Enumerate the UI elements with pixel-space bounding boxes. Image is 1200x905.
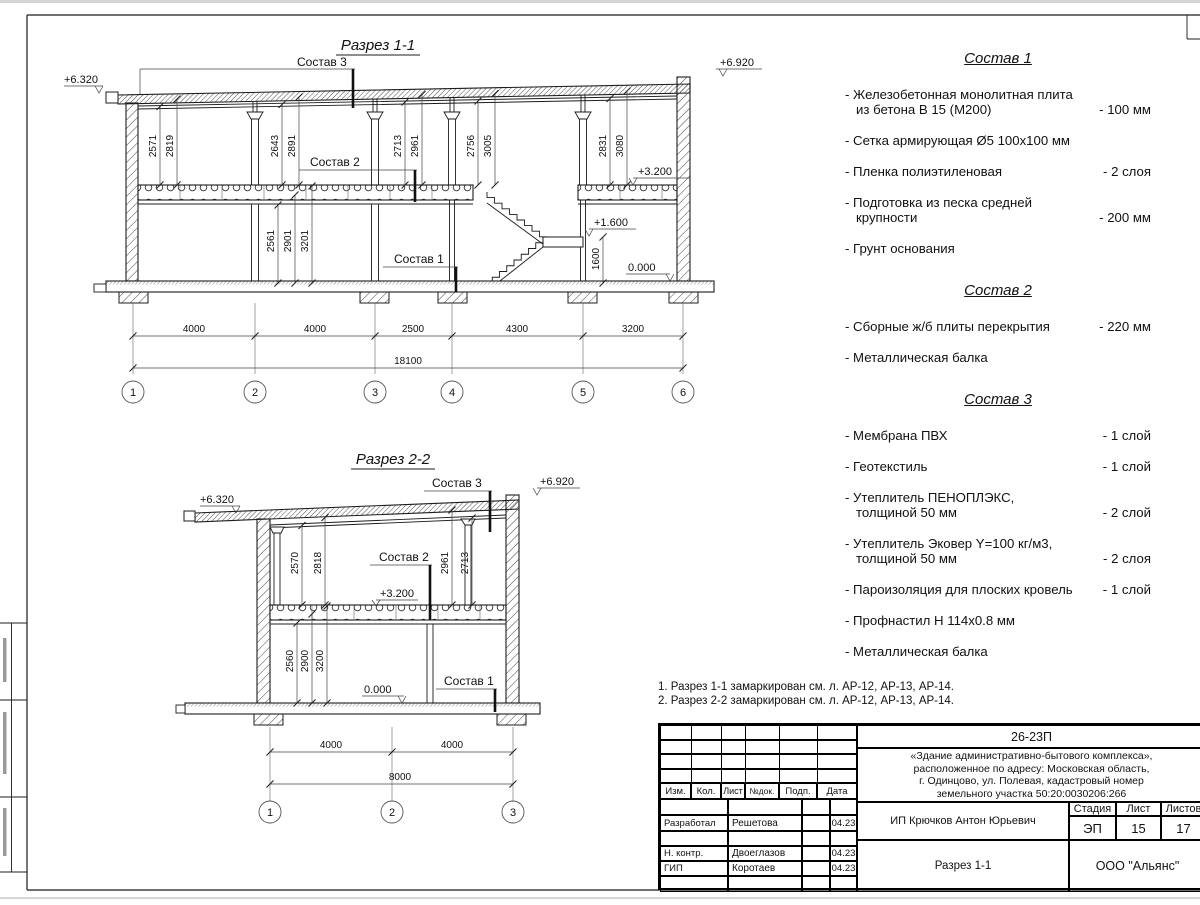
spec-value: - 1 слой: [1097, 459, 1151, 474]
spec-item: - Металлическая балка: [845, 350, 1151, 365]
dim-label: 2901: [283, 229, 294, 252]
sostav3-label: Состав 3: [432, 476, 482, 490]
dim-label: 2713: [393, 134, 404, 157]
dim-label: 3200: [622, 324, 645, 335]
spec-name: - Сборные ж/б плиты перекрытия: [845, 319, 1050, 334]
notes: 1. Разрез 1-1 замаркирован см. л. АР-12,…: [658, 680, 1188, 708]
axis-number: 6: [680, 387, 686, 399]
company-name: ООО "Альянс": [1069, 840, 1200, 892]
row-nkontr-name: Двоеглазов: [728, 846, 802, 861]
elev-right: +6.920: [540, 476, 574, 488]
elev-landing: +1.600: [594, 217, 628, 229]
row-gip-role: ГИП: [660, 861, 728, 876]
spec-name: - Пленка полиэтиленовая: [845, 164, 1002, 179]
row-nkontr-role: Н. контр.: [660, 846, 728, 861]
gutter: [184, 511, 195, 521]
section-2-2: Разрез 2-2: [176, 451, 580, 823]
elev-left: +6.320: [200, 494, 234, 506]
stage-value: ЭП: [1069, 816, 1116, 840]
spec-value: - 1 слой: [1097, 582, 1151, 597]
axis-number: 3: [510, 807, 516, 819]
sheet-title: Разрез 1-1: [857, 840, 1069, 892]
elev-left: +6.320: [64, 74, 98, 86]
row-gip-sign: [802, 861, 830, 876]
ground-columns: [427, 624, 433, 703]
spec-item: - Пленка полиэтиленовая- 2 слоя: [845, 164, 1151, 179]
spec-name: - Профнастил Н 114х0.8 мм: [845, 613, 1015, 628]
note-line-1: 1. Разрез 1-1 замаркирован см. л. АР-12,…: [658, 680, 1188, 694]
spec-name: - Пароизоляция для плоских кровель: [845, 582, 1073, 597]
axis-number: 1: [267, 807, 273, 819]
dim-label: 4000: [320, 740, 343, 751]
axis-bubbles: 1 2 3: [259, 801, 524, 823]
dim-label: 2961: [410, 134, 421, 157]
spec-item: - Пароизоляция для плоских кровель- 1 сл…: [845, 582, 1151, 597]
section-title: Разрез 1-1: [341, 37, 415, 54]
section-title: Разрез 2-2: [356, 451, 431, 468]
dim-label: 1600: [591, 247, 602, 270]
foundation-pads: [254, 714, 526, 725]
row-nkontr-sign: [802, 846, 830, 861]
sostav1-label: Состав 1: [394, 252, 444, 266]
spec-block-sostav1: Состав 1 - Железобетонная монолитная пли…: [845, 50, 1151, 256]
spec-item: - Железобетонная монолитная плита из бет…: [845, 87, 1151, 117]
note-line-2: 2. Разрез 2-2 замаркирован см. л. АР-12,…: [658, 694, 1188, 708]
stair-landing: [543, 237, 583, 247]
col-podp: Подп.: [779, 783, 817, 799]
page-top-edge: [0, 0, 1200, 3]
dim-label: 2961: [440, 551, 451, 574]
spec-name: - Сетка армирующая Ø5 100х100 мм: [845, 133, 1070, 148]
spec-item: - Грунт основания: [845, 241, 1151, 256]
spec-value: - 2 слоя: [1097, 164, 1151, 179]
ground-slab: [176, 703, 540, 714]
elev-right: +6.920: [720, 57, 754, 69]
spec-title: Состав 3: [845, 391, 1151, 408]
spec-item: - Сетка армирующая Ø5 100х100 мм: [845, 133, 1151, 148]
spec-block-sostav2: Состав 2 - Сборные ж/б плиты перекрытия-…: [845, 282, 1151, 365]
dim-label: 2831: [598, 134, 609, 157]
spec-name: - Утеплитель ПЕНОПЛЭКС, толщиной 50 мм: [845, 490, 1014, 520]
sostav3-label: Состав 3: [297, 55, 347, 69]
dim-label: 2570: [290, 551, 301, 574]
dim-label: 2560: [285, 649, 296, 672]
spec-title: Состав 1: [845, 50, 1151, 67]
left-wall: [257, 519, 270, 703]
dim-label: 2713: [460, 551, 471, 574]
right-wall: [506, 495, 519, 703]
row-razrabotal-date: 04.23: [830, 815, 857, 831]
dim-label: 2818: [313, 551, 324, 574]
gutter: [106, 92, 118, 103]
dim-label: 2500: [402, 324, 425, 335]
spec-title: Состав 2: [845, 282, 1151, 299]
spec-name: - Железобетонная монолитная плита из бет…: [845, 87, 1073, 117]
left-wall: [126, 103, 138, 281]
stairs: [485, 192, 583, 292]
project-name-text: «Здание административно-бытового комплек…: [911, 750, 1153, 800]
title-block: Изм. Кол. Лист №док. Подп. Дата Разработ…: [658, 723, 1200, 890]
spec-item: - Геотекстиль- 1 слой: [845, 459, 1151, 474]
ground-slab: [94, 281, 714, 292]
axis-number: 5: [580, 387, 586, 399]
row-gip-name: Коротаев: [728, 861, 802, 876]
drawing-sheet: Разрез 1-1: [0, 0, 1200, 905]
spec-value: - 2 слоя: [1097, 551, 1151, 566]
foundation-pads: [119, 292, 698, 303]
span-dimensions: 4000 4000 2500 4300 3200 18100: [130, 303, 687, 374]
spec-value: - 1 слой: [1097, 428, 1151, 443]
sostav2-label: Состав 2: [379, 550, 429, 564]
row-razrabotal-sign: [802, 815, 830, 831]
spec-item: - Профнастил Н 114х0.8 мм: [845, 613, 1151, 628]
col-ndok: №док.: [745, 783, 779, 799]
spec-name: - Утеплитель Эковер Y=100 кг/м3, толщино…: [845, 536, 1052, 566]
spec-name: - Металлическая балка: [845, 350, 988, 365]
dim-label: 2891: [287, 134, 298, 157]
elev-floor: +3.200: [380, 588, 414, 600]
sostav1-label: Состав 1: [444, 674, 494, 688]
dim-label: 2900: [300, 649, 311, 672]
sheet-label: Лист: [1116, 802, 1161, 816]
dim-label: 4300: [506, 324, 529, 335]
spec-item: - Сборные ж/б плиты перекрытия- 220 мм: [845, 319, 1151, 334]
row-nkontr-date: 04.23: [830, 846, 857, 861]
spec-name: - Мембрана ПВХ: [845, 428, 947, 443]
axis-bubbles: 1 2 3 4 5 6: [122, 381, 694, 403]
axis-number: 1: [130, 387, 136, 399]
specs-panel: Состав 1 - Железобетонная монолитная пли…: [845, 50, 1151, 685]
spec-value: - 220 мм: [1093, 319, 1151, 334]
dim-label: 18100: [394, 356, 422, 367]
dim-label: 4000: [441, 740, 464, 751]
spec-value: - 100 мм: [1093, 102, 1151, 117]
dim-label: 2571: [148, 134, 159, 157]
spec-value: - 2 слой: [1097, 505, 1151, 520]
dim-label: 4000: [183, 324, 206, 335]
dim-label: 4000: [304, 324, 327, 335]
sostav2-label: Состав 2: [310, 155, 360, 169]
dim-label: 3080: [615, 134, 626, 157]
sheets-label: Листов: [1161, 802, 1200, 816]
dim-label: 2561: [266, 229, 277, 252]
right-wall: [677, 77, 690, 281]
client-name: ИП Крючков Антон Юрьевич: [857, 802, 1069, 840]
dim-label: 2643: [270, 134, 281, 157]
span-dimensions: 4000 4000 8000: [267, 727, 517, 801]
dim-label: 8000: [389, 772, 412, 783]
row-gip-date: 04.23: [830, 861, 857, 876]
dim-label: 2756: [466, 134, 477, 157]
spec-item: - Утеплитель Эковер Y=100 кг/м3, толщино…: [845, 536, 1151, 566]
spec-name: - Грунт основания: [845, 241, 955, 256]
spec-value: - 200 мм: [1093, 210, 1151, 225]
left-margin-stamp: [0, 623, 27, 872]
sheet-value: 15: [1116, 816, 1161, 840]
spec-item: - Подготовка из песка средней крупности-…: [845, 195, 1151, 225]
dim-label: 3201: [300, 229, 311, 252]
col-kol: Кол.: [691, 783, 721, 799]
elev-floor: +3.200: [638, 166, 672, 178]
spec-name: - Подготовка из песка средней крупности: [845, 195, 1032, 225]
col-list: Лист: [721, 783, 745, 799]
axis-number: 2: [389, 807, 395, 819]
row-razrabotal-name: Решетова: [728, 815, 802, 831]
col-data: Дата: [817, 783, 857, 799]
elev-ground: 0.000: [364, 684, 392, 696]
project-name: «Здание административно-бытового комплек…: [857, 748, 1200, 802]
roof: [106, 84, 690, 109]
doc-number: 26-23П: [857, 725, 1200, 748]
floor-slab: [270, 605, 506, 624]
dim-label: 2819: [165, 134, 176, 157]
spec-name: - Металлическая балка: [845, 644, 988, 659]
spec-item: - Утеплитель ПЕНОПЛЭКС, толщиной 50 мм- …: [845, 490, 1151, 520]
elev-ground: 0.000: [628, 262, 656, 274]
dim-label: 3005: [483, 134, 494, 157]
sheets-value: 17: [1161, 816, 1200, 840]
section-1-1: Разрез 1-1: [64, 37, 762, 403]
axis-number: 4: [449, 387, 455, 399]
spec-item: - Металлическая балка: [845, 644, 1151, 659]
spec-block-sostav3: Состав 3 - Мембрана ПВХ- 1 слой - Геотек…: [845, 391, 1151, 659]
dim-label: 3200: [315, 649, 326, 672]
axis-number: 3: [372, 387, 378, 399]
axis-number: 2: [252, 387, 258, 399]
floor-slab: [138, 185, 677, 204]
stage-label: Стадия: [1069, 802, 1116, 816]
row-razrabotal-role: Разработал: [660, 815, 728, 831]
spec-name: - Геотекстиль: [845, 459, 930, 474]
col-izm: Изм.: [660, 783, 691, 799]
page-bottom-edge: [0, 897, 1200, 899]
spec-item: - Мембрана ПВХ- 1 слой: [845, 428, 1151, 443]
